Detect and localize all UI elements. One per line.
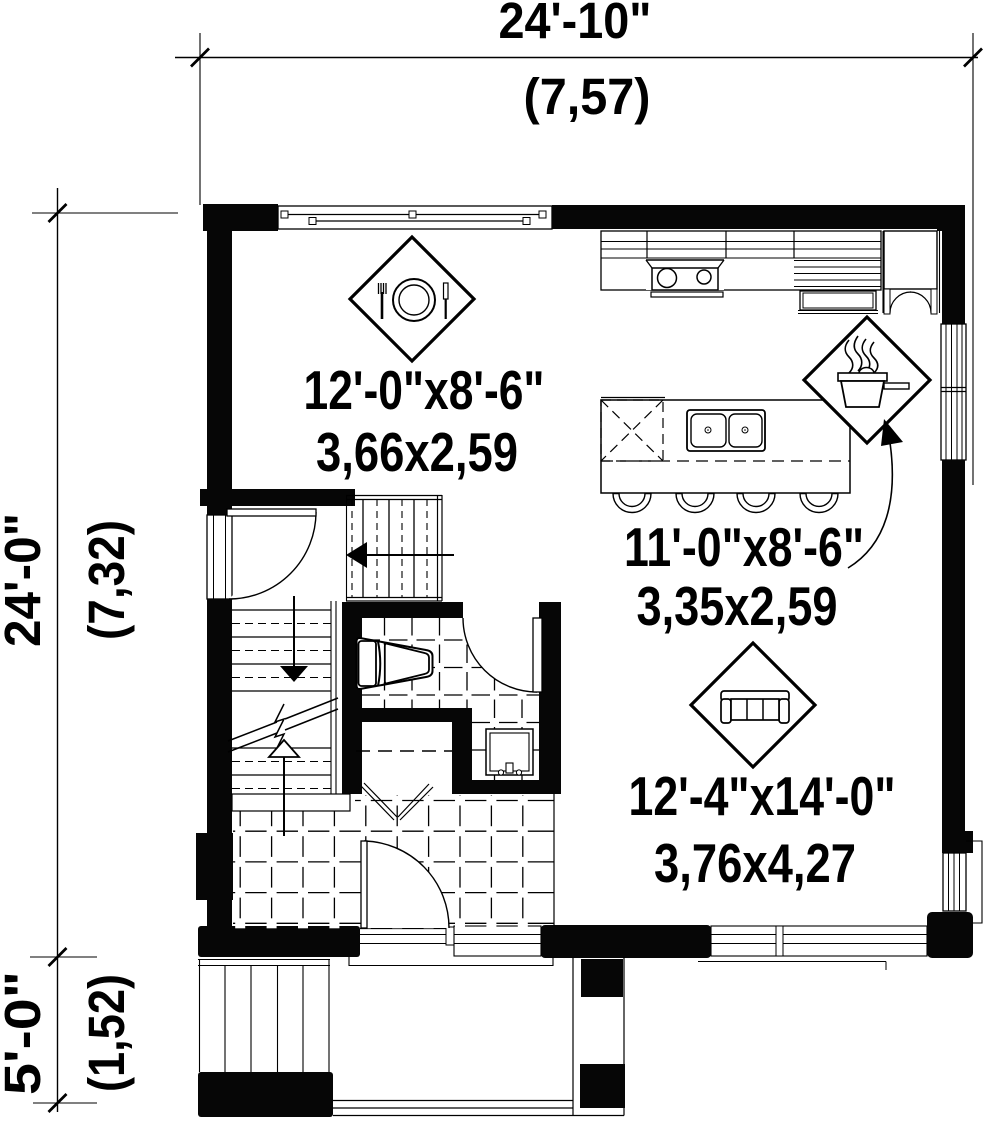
svg-text:12'-0"x8'-6": 12'-0"x8'-6" [304, 359, 545, 421]
svg-text:12'-4"x14'-0": 12'-4"x14'-0" [629, 765, 896, 827]
svg-text:(7,32): (7,32) [78, 520, 135, 640]
svg-text:3,76x4,27: 3,76x4,27 [654, 832, 856, 894]
svg-text:(7,57): (7,57) [524, 68, 651, 125]
svg-text:(1,52): (1,52) [78, 974, 135, 1092]
svg-text:11'-0"x8'-6": 11'-0"x8'-6" [624, 516, 864, 578]
svg-text:3,66x2,59: 3,66x2,59 [316, 421, 518, 483]
svg-text:24'-10": 24'-10" [499, 0, 652, 49]
svg-text:24'-0": 24'-0" [0, 513, 51, 647]
svg-text:5'-0": 5'-0" [0, 971, 51, 1095]
svg-text:3,35x2,59: 3,35x2,59 [637, 575, 838, 637]
